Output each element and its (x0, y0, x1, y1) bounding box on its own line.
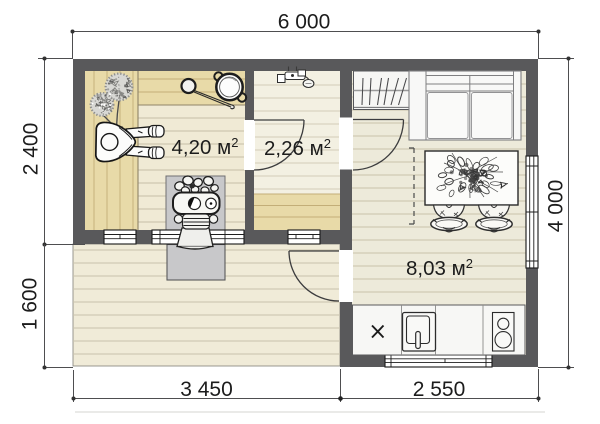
svg-text:1 600: 1 600 (19, 278, 42, 331)
svg-text:2 400: 2 400 (20, 123, 43, 176)
svg-text:4,20 м2: 4,20 м2 (172, 135, 239, 159)
svg-text:3 450: 3 450 (180, 378, 233, 401)
svg-text:6 000: 6 000 (278, 11, 331, 34)
svg-text:2 550: 2 550 (413, 378, 466, 401)
svg-text:4 000: 4 000 (545, 180, 568, 233)
svg-text:8,03 м2: 8,03 м2 (406, 256, 473, 280)
svg-text:2,26 м2: 2,26 м2 (264, 136, 331, 160)
